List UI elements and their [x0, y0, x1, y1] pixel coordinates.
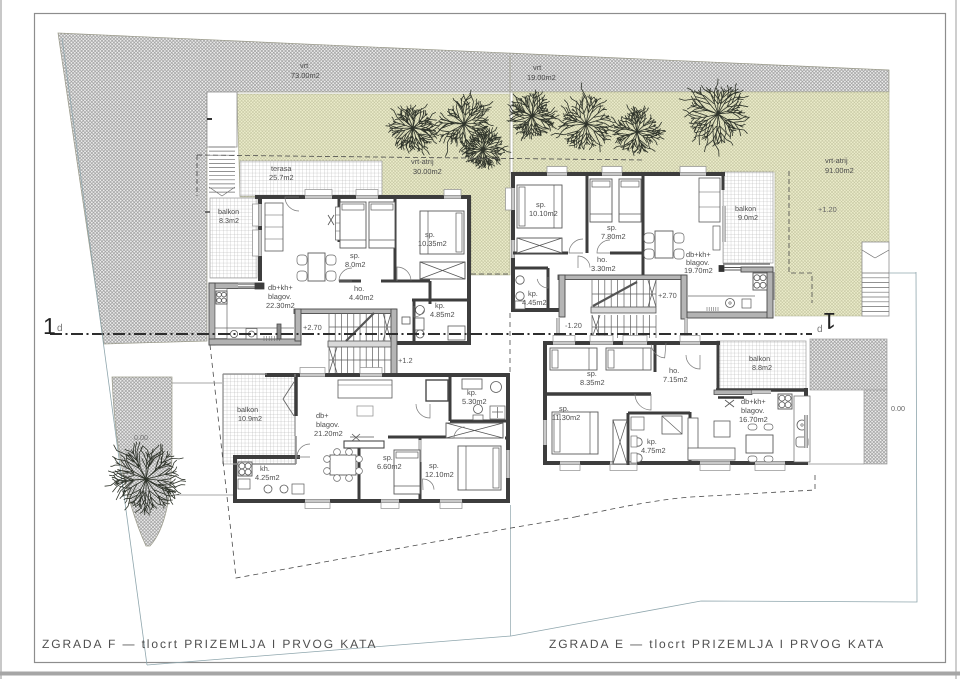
svg-text:7.80m2: 7.80m2: [601, 232, 626, 241]
svg-text:11.30m2: 11.30m2: [552, 413, 580, 422]
svg-text:91.00m2: 91.00m2: [825, 166, 854, 175]
svg-text:7.15m2: 7.15m2: [663, 375, 688, 384]
svg-text:ho.: ho.: [669, 366, 679, 375]
svg-text:+1.2: +1.2: [398, 356, 413, 365]
svg-text:sp.: sp.: [425, 230, 435, 239]
svg-text:0.00: 0.00: [134, 433, 148, 442]
svg-text:16.70m2: 16.70m2: [739, 415, 768, 424]
svg-text:db+kh+: db+kh+: [268, 283, 293, 292]
svg-text:balkon: balkon: [218, 207, 239, 216]
svg-text:6.60m2: 6.60m2: [377, 462, 402, 471]
svg-text:db+: db+: [316, 411, 329, 420]
svg-text:sp.: sp.: [607, 223, 617, 232]
svg-text:21.20m2: 21.20m2: [314, 429, 343, 438]
svg-text:sp.: sp.: [587, 369, 597, 378]
svg-text:4.40m2: 4.40m2: [349, 293, 374, 302]
svg-text:25.7m2: 25.7m2: [269, 173, 294, 182]
svg-text:vrt: vrt: [533, 63, 541, 72]
svg-text:8.8m2: 8.8m2: [752, 363, 772, 372]
svg-text:10.9m2: 10.9m2: [238, 414, 262, 423]
svg-text:vrt-atrij: vrt-atrij: [825, 156, 848, 165]
svg-text:4.45m2: 4.45m2: [522, 298, 547, 307]
svg-text:sp.: sp.: [429, 461, 439, 470]
svg-text:sp.: sp.: [350, 251, 360, 260]
svg-text:db+kh+: db+kh+: [741, 397, 766, 406]
svg-text:kp.: kp.: [528, 289, 538, 298]
svg-text:d: d: [817, 324, 823, 335]
svg-text:vrt: vrt: [300, 61, 308, 70]
svg-text:+1.20: +1.20: [818, 205, 837, 214]
svg-text:kh.: kh.: [260, 464, 270, 473]
svg-text:3.30m2: 3.30m2: [591, 264, 616, 273]
svg-text:12.10m2: 12.10m2: [425, 470, 454, 479]
svg-text:kp.: kp.: [467, 388, 477, 397]
svg-text:1: 1: [823, 308, 836, 334]
svg-text:22.30m2: 22.30m2: [266, 301, 295, 310]
svg-text:blagov.: blagov.: [268, 292, 291, 301]
svg-text:balkon: balkon: [749, 354, 770, 363]
svg-text:+2.70: +2.70: [303, 323, 322, 332]
svg-text:sp.: sp.: [536, 200, 546, 209]
svg-text:ho.: ho.: [597, 255, 607, 264]
svg-text:30.00m2: 30.00m2: [413, 167, 442, 176]
svg-text:8.3m2: 8.3m2: [219, 216, 239, 225]
svg-text:kp.: kp.: [435, 301, 445, 310]
svg-text:19.00m2: 19.00m2: [527, 73, 556, 82]
svg-text:ho.: ho.: [354, 284, 364, 293]
svg-text:kp.: kp.: [647, 437, 657, 446]
svg-text:+2.70: +2.70: [658, 291, 677, 300]
svg-text:10.35m2: 10.35m2: [418, 239, 447, 248]
svg-text:blagov.: blagov.: [316, 420, 339, 429]
svg-text:0.00: 0.00: [891, 404, 905, 413]
svg-text:balkon: balkon: [237, 405, 258, 414]
svg-text:1: 1: [43, 313, 56, 339]
svg-text:9.0m2: 9.0m2: [738, 213, 758, 222]
svg-text:vrt-atrij: vrt-atrij: [411, 157, 434, 166]
svg-text:sp.: sp.: [559, 404, 569, 413]
svg-text:balkon: balkon: [735, 204, 756, 213]
svg-text:terasa: terasa: [271, 164, 292, 173]
svg-text:-1.20: -1.20: [565, 321, 582, 330]
svg-text:8.0m2: 8.0m2: [345, 260, 366, 269]
svg-text:8.35m2: 8.35m2: [580, 378, 605, 387]
svg-text:sp.: sp.: [383, 453, 393, 462]
svg-text:d: d: [57, 323, 63, 334]
svg-text:4.75m2: 4.75m2: [641, 446, 666, 455]
svg-text:ZGRADA E — tlocrt PRIZEMLJA I: ZGRADA E — tlocrt PRIZEMLJA I PRVOG KATA: [549, 637, 885, 651]
svg-text:10.10m2: 10.10m2: [529, 209, 558, 218]
svg-text:blagov.: blagov.: [741, 406, 764, 415]
svg-text:5.30m2: 5.30m2: [462, 397, 487, 406]
svg-text:19.70m2: 19.70m2: [684, 266, 713, 275]
svg-text:ZGRADA F — tlocrt PRIZEMLJA I: ZGRADA F — tlocrt PRIZEMLJA I PRVOG KATA: [42, 637, 377, 651]
svg-text:4.25m2: 4.25m2: [255, 473, 280, 482]
svg-text:4.85m2: 4.85m2: [430, 310, 455, 319]
svg-text:73.00m2: 73.00m2: [291, 71, 320, 80]
